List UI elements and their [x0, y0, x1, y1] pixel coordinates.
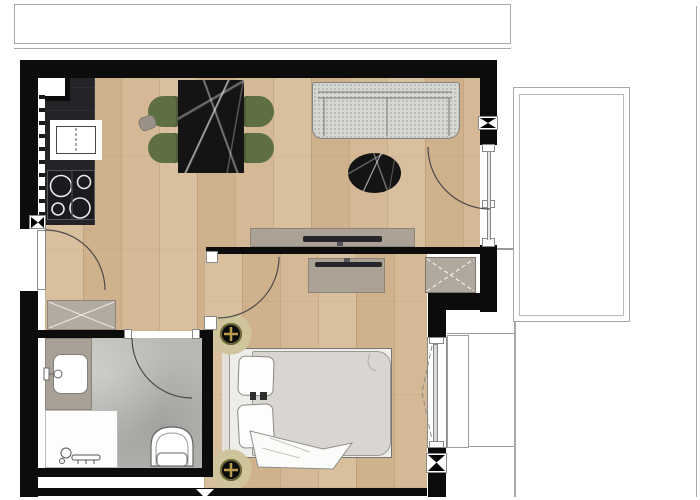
tv-bedroom [315, 262, 382, 267]
wall-bathroom-bottom [38, 468, 213, 477]
dining-chair-right-2 [243, 133, 274, 163]
dining-table-marble [178, 80, 244, 173]
service-shaft [425, 257, 476, 293]
pillow-1 [237, 355, 274, 396]
wall-bathroom-top-left [38, 330, 132, 338]
ceiling-light-1-core [222, 325, 240, 343]
tv-living-stand [337, 242, 343, 246]
tv-bedroom-stand [344, 258, 350, 262]
dining-chair-right-1 [243, 96, 274, 127]
window-sill-ledge [447, 335, 469, 448]
wall-bedroom-right-lower [428, 472, 446, 497]
bedroom-door-jamb-bottom [204, 316, 217, 330]
sill-connector-line-top [447, 333, 514, 334]
wall-right-mid [480, 130, 497, 145]
kitchen-corner-unit [45, 78, 70, 101]
wall-bottom-outer [38, 488, 427, 496]
wall-left-upper [20, 60, 38, 229]
wall-joint-bowtie-bedroom [426, 453, 447, 473]
wall-left-lower [20, 291, 38, 497]
entry-door-leaf [37, 230, 46, 290]
wall-right-upper [480, 60, 497, 117]
wall-bathroom-right [202, 331, 213, 477]
wall-balcony-connector-line [497, 248, 514, 250]
bedroom-window-glass [433, 344, 438, 442]
bathroom-door-jamb-left [124, 329, 132, 339]
balcony-right-outline-inner [519, 94, 624, 316]
balcony-right-rail [514, 322, 516, 497]
pillow-2 [237, 403, 275, 449]
wall-joint-bowtie-left [29, 215, 46, 229]
site-boundary-line [696, 6, 697, 497]
dining-chair-left-2 [148, 133, 179, 163]
shower-tray [45, 410, 118, 468]
coffee-table-oval [348, 153, 401, 193]
wall-bedroom-right-upper [428, 310, 446, 338]
kitchen-wall-dash-strip [39, 95, 45, 225]
floor-plan [0, 0, 700, 500]
wall-bedroom-topright [428, 293, 497, 310]
wall-partition [206, 247, 490, 254]
wall-joint-bowtie-right-living [478, 116, 498, 130]
wall-top [20, 60, 497, 78]
bathroom-door-jamb-right [192, 329, 200, 339]
cooktop [47, 170, 95, 220]
balcony-door-frame-top [482, 144, 495, 152]
ceiling-light-2-core [222, 461, 240, 479]
terrace-top-edge-line [14, 48, 511, 49]
balcony-door-glass [487, 152, 491, 240]
bedroom-door-jamb-top [206, 251, 218, 263]
bedroom-window-frame-bottom [429, 441, 444, 448]
bed-headboard [222, 348, 230, 458]
sofa [312, 82, 460, 139]
kitchen-sink-basin [56, 126, 96, 154]
bedroom-window-frame-top [429, 337, 444, 344]
terrace-top-outline [14, 4, 511, 44]
wash-basin [53, 354, 88, 394]
hall-cabinet [47, 300, 116, 330]
